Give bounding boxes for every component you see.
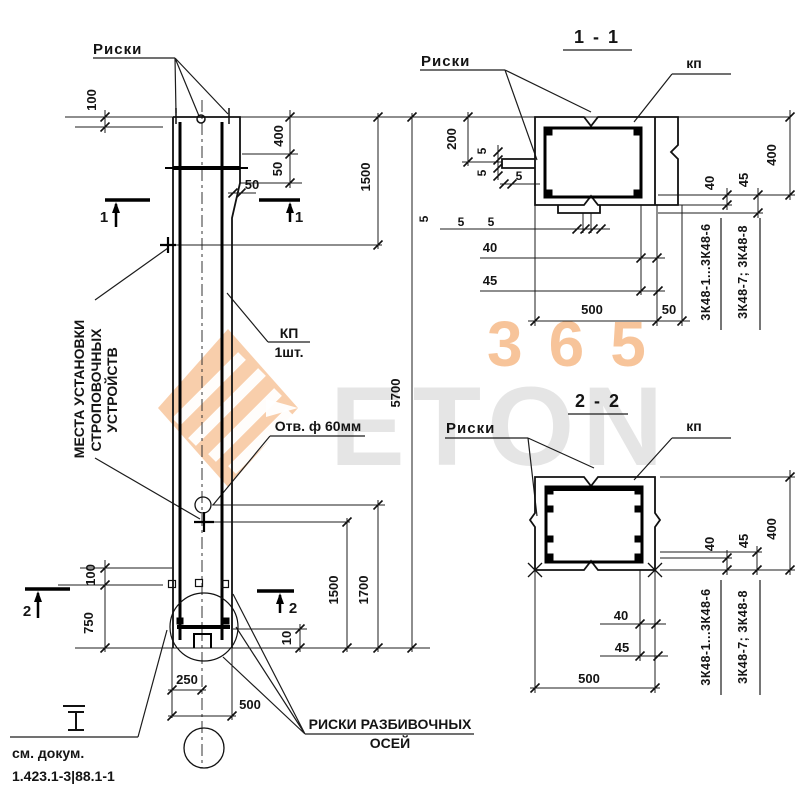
dim-45-right-1-1: 45 — [736, 173, 751, 187]
mark-a-2-2: 3К48-1...3К48-6 — [699, 588, 713, 685]
dim-250: 250 — [176, 672, 198, 687]
dim-1700: 1700 — [356, 576, 371, 605]
hole-60mm-icon — [195, 497, 211, 513]
bottom-stirrup-marks — [169, 580, 229, 588]
section-1-1-title: 1 - 1 — [574, 27, 620, 47]
dim-5e-1-1: 5 — [458, 215, 465, 229]
dim-40-right-1-1: 40 — [702, 176, 717, 190]
technical-drawing: 365 ETON Риски 100 400 50 50 1500 5700 1… — [0, 0, 800, 800]
rebar-dot — [634, 129, 641, 136]
mesta-label-line2: СТРОПОВОЧНЫХ — [88, 328, 104, 452]
dim-5a-1-1: 5 — [475, 147, 489, 154]
dim-50-v: 50 — [270, 162, 285, 176]
kp-label-2-2: кп — [686, 418, 701, 434]
rebar-dot — [547, 554, 554, 561]
riski-label-2-2: Риски — [446, 420, 495, 437]
see-doc-line2: 1.423.1-3|88.1-1 — [12, 768, 115, 784]
section-2-2-title: 2 - 2 — [575, 391, 621, 411]
dim-40-right-2-2: 40 — [702, 537, 717, 551]
rebar-dot — [547, 488, 554, 495]
see-doc-line1: см. докум. — [12, 745, 84, 761]
dim-5700: 5700 — [388, 379, 403, 408]
dim-5b-1-1: 5 — [475, 169, 489, 176]
dim-50-h: 50 — [245, 177, 259, 192]
dim-500-1-1: 500 — [581, 302, 603, 317]
drawing-sheet: 365 ETON Риски 100 400 50 50 1500 5700 1… — [0, 0, 800, 800]
dim-500-elev: 500 — [239, 697, 261, 712]
dim-1500-bottom: 1500 — [326, 576, 341, 605]
stirrup-2-2 — [546, 487, 642, 562]
dim-10: 10 — [279, 631, 294, 645]
rebar-dot — [547, 506, 554, 513]
dim-45-bottom-2-2: 45 — [615, 640, 629, 655]
dim-40-bottom-1-1: 40 — [483, 240, 497, 255]
dim-500-2-2: 500 — [578, 671, 600, 686]
mesta-label-line3: УСТРОЙСТВ — [103, 347, 120, 433]
rebar-dot — [223, 618, 230, 625]
axes-label-line2: ОСЕЙ — [370, 734, 410, 751]
dim-750: 750 — [81, 612, 96, 634]
section-mark-1-left: 1 — [100, 209, 108, 226]
mark-a-1-1: 3К48-1...3К48-6 — [699, 223, 713, 320]
mark-b-2-2: 3К48-7; 3К48-8 — [736, 590, 750, 684]
dim-45-bottom-1-1: 45 — [483, 273, 497, 288]
kp-label-1-1: кп — [686, 55, 701, 71]
rebar-dot — [634, 190, 641, 197]
riski-label-1-1: Риски — [421, 53, 470, 70]
dim-5c-1-1: 5 — [516, 169, 523, 183]
dim-5d-1-1: 5 — [417, 215, 431, 222]
section-mark-2-left: 2 — [23, 603, 31, 620]
kp-qty-label: 1шт. — [275, 344, 304, 360]
rebar-dot — [635, 536, 642, 543]
watermark-word: ETON — [330, 364, 671, 489]
datum-circle — [184, 728, 224, 768]
rebar-dot — [546, 190, 553, 197]
dim-40-bottom-2-2: 40 — [614, 608, 628, 623]
mark-b-1-1: 3К48-7; 3К48-8 — [736, 225, 750, 319]
dim-200-1-1: 200 — [444, 128, 459, 150]
section-mark-2-right: 2 — [289, 600, 297, 617]
section-1-1-outline — [502, 117, 678, 213]
dim-100-top: 100 — [84, 89, 99, 111]
dim-1500-top: 1500 — [358, 163, 373, 192]
hole-label: Отв. ф 60мм — [275, 418, 362, 434]
dim-5f-1-1: 5 — [488, 215, 495, 229]
dim-400-1-1: 400 — [764, 144, 779, 166]
dim-50-1-1: 50 — [662, 302, 676, 317]
foot-mark-symbol — [63, 706, 85, 730]
mesta-label-line1: МЕСТА УСТАНОВКИ — [71, 320, 87, 458]
dim-45-right-2-2: 45 — [736, 534, 751, 548]
stirrup-1-1 — [545, 128, 641, 197]
dim-100-bottom: 100 — [83, 564, 98, 586]
dim-400: 400 — [271, 125, 286, 147]
dim-400-2-2: 400 — [764, 518, 779, 540]
riski-top-label: Риски — [93, 41, 142, 58]
rebar-dot — [635, 554, 642, 561]
rebar-dot — [635, 506, 642, 513]
kp-label: КП — [280, 325, 299, 341]
rebar-dot — [546, 129, 553, 136]
axes-label-line1: РИСКИ РАЗБИВОЧНЫХ — [309, 716, 472, 732]
rebar-dot — [547, 536, 554, 543]
rebar-dot — [635, 488, 642, 495]
section-mark-1-right: 1 — [295, 209, 303, 226]
rebar-dot — [177, 618, 184, 625]
